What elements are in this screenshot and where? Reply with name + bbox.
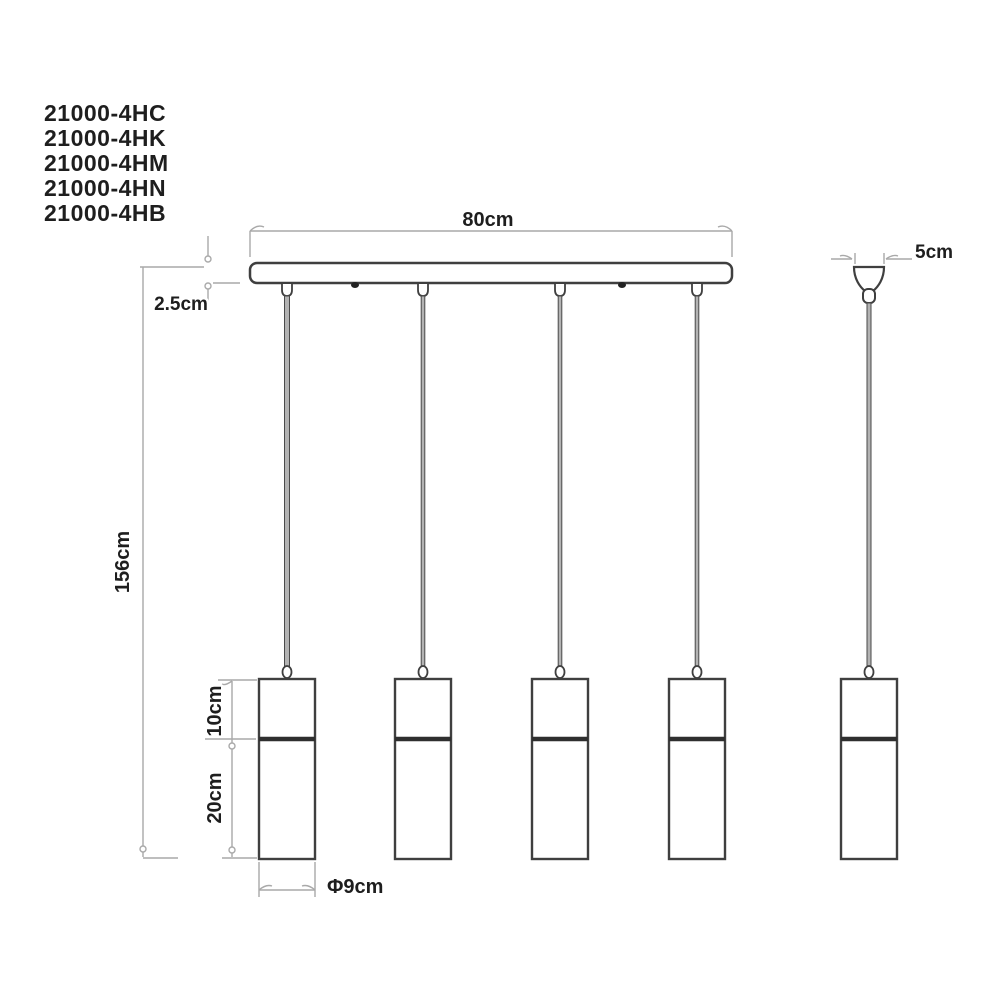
cord-loop bbox=[865, 666, 874, 678]
pendant-4 bbox=[669, 284, 725, 859]
cord-loop bbox=[693, 666, 702, 678]
product-code: 21000-4HM bbox=[44, 150, 169, 176]
product-code: 21000-4HB bbox=[44, 200, 166, 226]
pendants-front bbox=[259, 284, 725, 859]
cord-loop bbox=[556, 666, 565, 678]
side-view: 5cm bbox=[831, 242, 953, 859]
product-code: 21000-4HK bbox=[44, 125, 166, 151]
dim-top-section-label: 10cm bbox=[204, 685, 226, 736]
ceiling-mounting-bar bbox=[250, 263, 732, 283]
cord-grip bbox=[863, 289, 875, 303]
dim-drop-height bbox=[140, 267, 178, 858]
pendant-3 bbox=[532, 284, 588, 859]
pendant-2 bbox=[395, 284, 451, 859]
dim-bottom-section-label: 20cm bbox=[204, 772, 226, 823]
dim-canopy-width bbox=[831, 253, 912, 264]
cord-grip bbox=[692, 284, 702, 296]
ceiling-canopy bbox=[854, 267, 884, 291]
screw-dot-icon bbox=[618, 282, 626, 288]
screw-dot-icon bbox=[351, 282, 359, 288]
suspension-cord bbox=[421, 296, 425, 666]
front-view: 80cm 2.5cm 156cm bbox=[112, 209, 732, 898]
pendant-shade bbox=[669, 679, 725, 859]
product-code-list: 21000-4HC 21000-4HK 21000-4HM 21000-4HN … bbox=[44, 100, 169, 226]
technical-drawing-page: 21000-4HC 21000-4HK 21000-4HM 21000-4HN … bbox=[0, 0, 1000, 1000]
dim-bar-width-label: 80cm bbox=[462, 209, 513, 231]
suspension-cord bbox=[867, 303, 871, 666]
pendant-shade bbox=[841, 679, 897, 859]
dim-arrow-icon bbox=[250, 226, 264, 231]
dim-shade-diameter-label: Φ9cm bbox=[327, 876, 383, 898]
product-code: 21000-4HN bbox=[44, 175, 166, 201]
suspension-cord bbox=[285, 296, 290, 666]
dim-shade-diameter bbox=[259, 862, 315, 897]
dim-arrow-icon bbox=[222, 681, 232, 685]
cord-grip bbox=[555, 284, 565, 296]
dim-arrow-icon bbox=[718, 226, 732, 231]
product-code: 21000-4HC bbox=[44, 100, 166, 126]
suspension-cord bbox=[695, 296, 699, 666]
pendant-1 bbox=[259, 284, 315, 859]
suspension-cord bbox=[558, 296, 562, 666]
cord-loop bbox=[283, 666, 292, 678]
dim-canopy-width-label: 5cm bbox=[915, 242, 953, 263]
cord-loop bbox=[419, 666, 428, 678]
cord-grip bbox=[418, 284, 428, 296]
cord-grip bbox=[282, 284, 292, 296]
pendant-light-dimension-diagram: 21000-4HC 21000-4HK 21000-4HM 21000-4HN … bbox=[0, 0, 1000, 1000]
pendant-shade bbox=[259, 679, 315, 859]
dim-drop-height-label: 156cm bbox=[112, 531, 134, 593]
dim-bar-thickness-label: 2.5cm bbox=[154, 294, 208, 315]
pendant-shade bbox=[395, 679, 451, 859]
pendant-shade bbox=[532, 679, 588, 859]
